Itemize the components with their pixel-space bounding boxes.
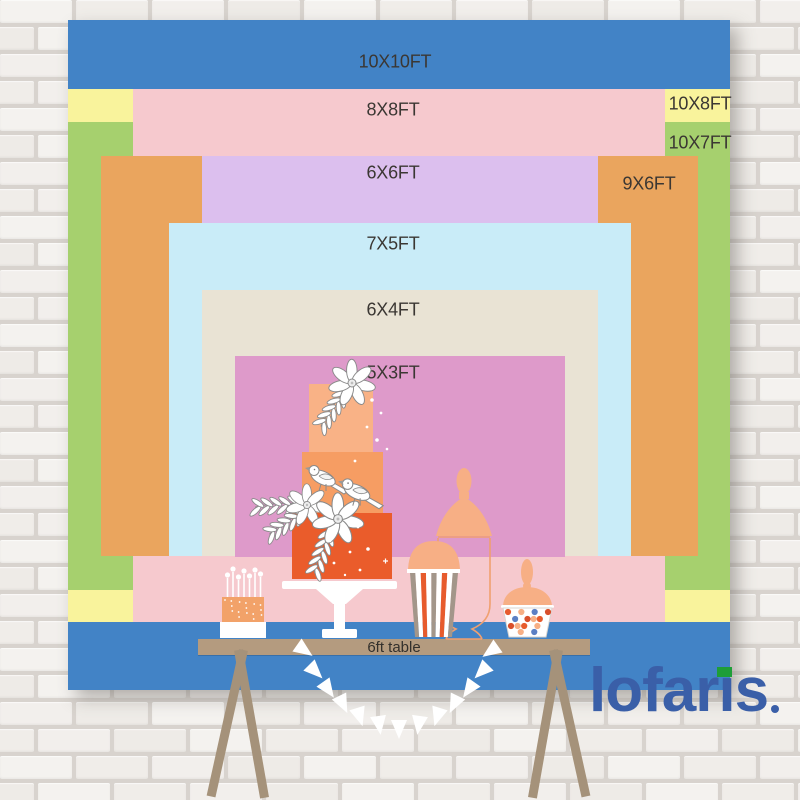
logo-text: lofar: [589, 660, 718, 722]
lofaris-logo: lofarıs: [589, 660, 779, 722]
size-label-5X3FT: 5X3FT: [366, 363, 419, 384]
logo-i-accent-block: [717, 667, 732, 677]
table-size-label: 6ft table: [367, 640, 420, 655]
dessert-table-top: 6ft table: [198, 639, 590, 655]
size-label-9X6FT: 9X6FT: [622, 174, 675, 195]
registered-mark-dot: [771, 705, 779, 713]
size-label-10X7FT: 10X7FT: [669, 133, 732, 154]
backdrop-layer-5X3FT: [235, 356, 565, 557]
size-label-6X4FT: 6X4FT: [366, 300, 419, 321]
size-label-7X5FT: 7X5FT: [366, 234, 419, 255]
logo-letter-i: ı: [718, 660, 734, 722]
size-label-6X6FT: 6X6FT: [366, 163, 419, 184]
backdrop-size-chart-mockup: 10X10FT10X8FT10X7FT8X8FT9X6FT6X6FT7X5FT6…: [0, 0, 800, 800]
size-label-8X8FT: 8X8FT: [366, 100, 419, 121]
size-label-10X10FT: 10X10FT: [359, 52, 432, 73]
size-label-10X8FT: 10X8FT: [669, 94, 732, 115]
logo-text: s: [735, 660, 768, 722]
